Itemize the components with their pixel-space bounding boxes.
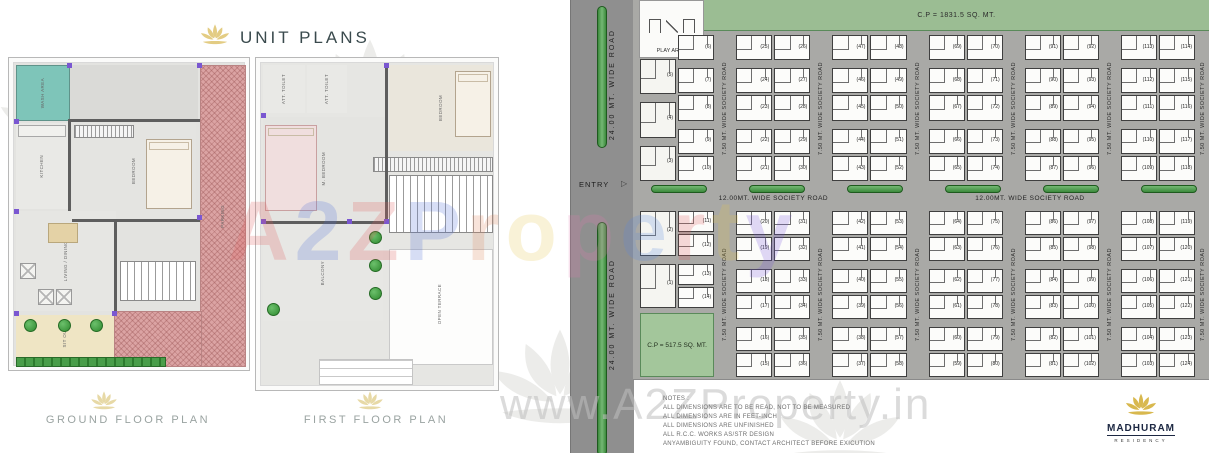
society-road: 7.50 MT. WIDE SOCIETY ROAD	[811, 34, 831, 182]
plot-cell: (4)	[640, 102, 676, 137]
plot-number: (118)	[1181, 166, 1192, 171]
watermark-letter: o	[505, 184, 562, 278]
plot-cell: (71)	[967, 68, 1003, 93]
society-road-label: 7.50 MT. WIDE SOCIETY ROAD	[915, 248, 921, 341]
society-road-label: 7.50 MT. WIDE SOCIETY ROAD	[1200, 62, 1206, 155]
main-road-label-top-text: 24.00 MT. WIDE ROAD	[609, 29, 616, 140]
plot-cell: (106)	[1121, 269, 1157, 293]
plot-cell: (20)	[736, 211, 772, 235]
plot-cell: (88)	[1025, 129, 1061, 154]
plot-number: (6)	[705, 45, 711, 50]
dining-table	[48, 223, 78, 243]
plot-number: (95)	[1087, 138, 1096, 143]
plot-number: (15)	[760, 362, 769, 367]
plot-cell: (32)	[774, 237, 810, 261]
plot-cell: (70)	[967, 35, 1003, 60]
room-label-parking: PARKING	[220, 205, 225, 228]
society-road: 7.50 MT. WIDE SOCIETY ROAD	[1100, 210, 1120, 378]
room-label-bedroom-first: BEDROOM	[438, 95, 443, 121]
tree	[24, 319, 37, 332]
plot-number: (11)	[703, 219, 712, 224]
plot-number: (71)	[991, 78, 1000, 83]
plot-block: (42)(41)(40)(39)(38)(37)(53)(54)(55)(56)…	[831, 210, 907, 378]
plot-number: (16)	[760, 336, 769, 341]
plot-cell: (66)	[929, 129, 965, 154]
plot-number: (116)	[1181, 105, 1192, 110]
plot-number: (69)	[953, 45, 962, 50]
plot-cell: (10)	[678, 156, 714, 181]
plot-cell: (47)	[832, 35, 868, 60]
plot-number: (82)	[1049, 336, 1058, 341]
plot-number: (123)	[1180, 336, 1192, 341]
plot-number: (62)	[953, 278, 962, 283]
plot-cell: (63)	[929, 237, 965, 261]
room-balcony: BALCONY	[263, 225, 383, 321]
plot-number: (2)	[667, 228, 673, 233]
plot-number: (84)	[1049, 278, 1058, 283]
plot-number: (47)	[857, 45, 866, 50]
note-line: ALL DIMENSIONS ARE UNFINISHED	[663, 422, 875, 431]
plot-cell: (76)	[967, 237, 1003, 261]
plot-cell: (26)	[774, 35, 810, 60]
plot-cell: (28)	[774, 95, 810, 120]
plot-cell: (93)	[1063, 68, 1099, 93]
plot-number: (18)	[760, 278, 769, 283]
plot-cell: (35)	[774, 327, 810, 351]
plot-cell: (87)	[1025, 156, 1061, 181]
plot-cell: (75)	[967, 211, 1003, 235]
tree	[369, 287, 382, 300]
plot-cell: (49)	[870, 68, 906, 93]
plot-column: (6)(7)(8)(9)(10)	[678, 34, 714, 182]
plot-cell: (115)	[1159, 68, 1195, 93]
road-median	[749, 185, 805, 193]
plot-cell: (5)	[640, 59, 676, 94]
room-wash-area: WASH AREA	[16, 65, 70, 121]
wall-accent	[261, 113, 266, 118]
plot-number: (88)	[1049, 138, 1058, 143]
mid-society-road-12m: 12.00MT. WIDE SOCIETY ROAD 12.00MT. WIDE…	[639, 182, 1209, 210]
plot-column: (42)(41)(40)(39)(38)(37)	[832, 210, 868, 378]
society-road: 7.50 MT. WIDE SOCIETY ROAD	[715, 210, 735, 378]
society-road-label: 7.50 MT. WIDE SOCIETY ROAD	[1011, 248, 1017, 341]
plot-cell: (59)	[929, 353, 965, 377]
plot-cell: (45)	[832, 95, 868, 120]
plot-cell: (81)	[1025, 353, 1061, 377]
plot-number: (78)	[991, 304, 1000, 309]
society-road-label: 7.50 MT. WIDE SOCIETY ROAD	[1107, 248, 1113, 341]
entry-label: ENTRY	[579, 180, 609, 189]
society-road: 7.50 MT. WIDE SOCIETY ROAD	[1004, 210, 1024, 378]
plot-number: (3)	[667, 159, 673, 164]
plot-cell: (46)	[832, 68, 868, 93]
plot-cell: (118)	[1159, 156, 1195, 181]
plot-cell: (99)	[1063, 269, 1099, 293]
wall	[114, 221, 117, 313]
plot-number: (77)	[991, 278, 1000, 283]
plot-cell: (103)	[1121, 353, 1157, 377]
plot-number: (107)	[1142, 246, 1154, 251]
plot-number: (28)	[798, 105, 807, 110]
staircase	[389, 175, 493, 233]
society-road: 7.50 MT. WIDE SOCIETY ROAD	[1100, 34, 1120, 182]
plot-cell: (114)	[1159, 35, 1195, 60]
plot-number: (31)	[798, 220, 807, 225]
plot-column: (2)(1)	[640, 210, 676, 309]
plot-number: (21)	[760, 166, 769, 171]
ground-floor-plan-drawing: WASH AREA PARKING KITCHEN BEDROOM LIVING…	[13, 62, 245, 366]
plot-number: (67)	[953, 105, 962, 110]
plot-number: (32)	[798, 246, 807, 251]
plot-cell: (111)	[1121, 95, 1157, 120]
room-label-bedroom: BEDROOM	[131, 158, 136, 184]
plot-number: (58)	[895, 362, 904, 367]
plot-column: (26)(27)(28)(29)(30)	[774, 34, 810, 182]
room-label-living: LIVING / DINING	[63, 241, 68, 281]
plot-cell: (51)	[870, 129, 906, 154]
plot-number: (41)	[857, 246, 866, 251]
plot-cell: (123)	[1159, 327, 1195, 351]
wall	[385, 65, 388, 221]
plot-cell: (7)	[678, 68, 714, 93]
plot-cell: (116)	[1159, 95, 1195, 120]
plot-cell: (50)	[870, 95, 906, 120]
society-road: 7.50 MT. WIDE SOCIETY ROAD	[811, 210, 831, 378]
wall-accent	[197, 63, 202, 68]
tree	[90, 319, 103, 332]
note-line: ALL DIMENSIONS ARE TO BE READ, NOT TO BE…	[663, 404, 875, 413]
plot-number: (122)	[1180, 304, 1192, 309]
plot-number: (45)	[857, 105, 866, 110]
plot-column: (92)(93)(94)(95)(96)	[1063, 34, 1099, 182]
plot-cell: (79)	[967, 327, 1003, 351]
plot-cell: (55)	[870, 269, 906, 293]
plot-cell: (74)	[967, 156, 1003, 181]
plot-number: (92)	[1087, 45, 1096, 50]
plot-cell: (100)	[1063, 295, 1099, 319]
plot-cell: (68)	[929, 68, 965, 93]
plot-cell: (12)	[678, 234, 714, 255]
plot-cell: (25)	[736, 35, 772, 60]
bed	[146, 139, 192, 209]
plot-cell: (43)	[832, 156, 868, 181]
plot-cell: (52)	[870, 156, 906, 181]
plot-number: (91)	[1049, 45, 1058, 50]
plot-column: (11)(12)(13)(14)	[678, 210, 714, 309]
plot-number: (121)	[1180, 278, 1192, 283]
plot-number: (101)	[1084, 336, 1096, 341]
plot-column: (69)(68)(67)(66)(65)	[929, 34, 965, 182]
room-att-toilet-1: ATT. TOILET	[263, 65, 305, 113]
plot-number: (119)	[1181, 220, 1192, 225]
plot-cell: (82)	[1025, 327, 1061, 351]
plot-cell: (124)	[1159, 353, 1195, 377]
wall	[70, 119, 200, 122]
sofa-seat	[38, 289, 54, 305]
society-road-label: 7.50 MT. WIDE SOCIETY ROAD	[1107, 62, 1113, 155]
plot-number: (1)	[667, 281, 673, 286]
note-line: ALL R.C.C. WORKS AS/STR DESIGN	[663, 431, 875, 440]
plot-cell: (72)	[967, 95, 1003, 120]
plot-number: (76)	[991, 246, 1000, 251]
plot-column: (75)(76)(77)(78)(79)(80)	[967, 210, 1003, 378]
plot-number: (73)	[991, 138, 1000, 143]
plot-number: (19)	[760, 246, 769, 251]
wall-accent	[384, 219, 389, 224]
plot-number: (105)	[1142, 304, 1154, 309]
plot-number: (63)	[953, 246, 962, 251]
plot-number: (74)	[991, 166, 1000, 171]
page-title: UNIT PLANS	[240, 28, 370, 48]
main-road-label-bottom: 24.00 MT. WIDE ROAD	[609, 240, 616, 390]
plot-cell: (113)	[1121, 35, 1157, 60]
first-floor-plan-label: FIRST FLOOR PLAN	[255, 414, 497, 426]
wall-accent	[14, 119, 19, 124]
main-road-label-bottom-text: 24.00 MT. WIDE ROAD	[609, 259, 616, 370]
plot-number: (8)	[705, 105, 711, 110]
plot-number: (5)	[667, 73, 673, 78]
plot-number: (38)	[857, 336, 866, 341]
tree	[369, 259, 382, 272]
plot-number: (106)	[1142, 278, 1154, 283]
plot-cell: (56)	[870, 295, 906, 319]
plot-number: (54)	[895, 246, 904, 251]
plot-column: (91)(90)(89)(88)(87)	[1025, 34, 1061, 182]
plot-number: (97)	[1087, 220, 1096, 225]
society-road: 7.50 MT. WIDE SOCIETY ROAD	[1196, 210, 1209, 378]
plot-number: (90)	[1049, 78, 1058, 83]
plot-number: (37)	[857, 362, 866, 367]
wall-accent	[197, 215, 202, 220]
plot-cell: (42)	[832, 211, 868, 235]
note-line: ALL DIMENSIONS ARE IN FEET-INCH	[663, 413, 875, 422]
room-label-wash: WASH AREA	[40, 78, 45, 108]
plot-number: (109)	[1142, 166, 1154, 171]
plot-cell: (108)	[1121, 211, 1157, 235]
plot-cell: (48)	[870, 35, 906, 60]
plot-number: (20)	[760, 220, 769, 225]
sofa-seat	[20, 263, 36, 279]
main-road-label-top: 24.00 MT. WIDE ROAD	[609, 20, 616, 150]
plot-number: (30)	[798, 166, 807, 171]
plot-number: (68)	[953, 78, 962, 83]
plot-cell: (122)	[1159, 295, 1195, 319]
plot-number: (113)	[1143, 45, 1154, 50]
plot-cell: (95)	[1063, 129, 1099, 154]
plot-number: (48)	[895, 45, 904, 50]
common-plot-bottom: C.P = 517.5 SQ. MT.	[640, 313, 714, 377]
wall-accent	[347, 219, 352, 224]
road-median	[597, 6, 607, 148]
plot-number: (51)	[895, 138, 904, 143]
plot-cell: (53)	[870, 211, 906, 235]
plot-block: (69)(68)(67)(66)(65)(70)(71)(72)(73)(74)	[928, 34, 1004, 182]
plot-cell: (62)	[929, 269, 965, 293]
plot-number: (12)	[702, 243, 711, 248]
road-median	[1043, 185, 1099, 193]
tree	[369, 231, 382, 244]
wall-accent	[14, 209, 19, 214]
plot-number: (87)	[1049, 166, 1058, 171]
plot-cell: (112)	[1121, 68, 1157, 93]
plot-number: (102)	[1084, 362, 1096, 367]
ground-plan-lotus-icon	[86, 390, 122, 412]
society-road-label: 7.50 MT. WIDE SOCIETY ROAD	[1011, 62, 1017, 155]
plot-column: (53)(54)(55)(56)(57)(58)	[870, 210, 906, 378]
parking-area: PARKING	[200, 65, 246, 367]
road-median	[847, 185, 903, 193]
plot-number: (24)	[760, 78, 769, 83]
main-road-24m: 24.00 MT. WIDE ROAD 24.00 MT. WIDE ROAD …	[570, 0, 634, 453]
plot-number: (36)	[798, 362, 807, 367]
mid-road-label-left: 12.00MT. WIDE SOCIETY ROAD	[719, 195, 828, 202]
plot-cell: (8)	[678, 95, 714, 120]
plot-number: (72)	[991, 105, 1000, 110]
plot-cell: (83)	[1025, 295, 1061, 319]
plot-cell: (97)	[1063, 211, 1099, 235]
plot-column: (70)(71)(72)(73)(74)	[967, 34, 1003, 182]
plot-block: (108)(107)(106)(105)(104)(103)(119)(120)…	[1120, 210, 1196, 378]
brochure-page: UNIT PLANS WASH AREA PARKING KITCHEN BED…	[0, 0, 1209, 453]
first-plan-lotus-icon	[352, 390, 388, 412]
plot-cell: (1)	[640, 264, 676, 309]
plot-cell: (57)	[870, 327, 906, 351]
seesaw-icon	[683, 19, 695, 33]
plot-cell: (29)	[774, 129, 810, 154]
plot-block: (5)(4)(3)(6)(7)(8)(9)(10)	[639, 34, 715, 182]
plot-cell: (85)	[1025, 237, 1061, 261]
plot-cell: (119)	[1159, 211, 1195, 235]
society-road: 7.50 MT. WIDE SOCIETY ROAD	[715, 34, 735, 182]
wall-accent	[14, 311, 19, 316]
plot-cell: (86)	[1025, 211, 1061, 235]
notes-lines: ALL DIMENSIONS ARE TO BE READ, NOT TO BE…	[663, 404, 875, 449]
plot-cell: (98)	[1063, 237, 1099, 261]
slide-icon	[666, 20, 678, 33]
society-road-label: 7.50 MT. WIDE SOCIETY ROAD	[1200, 248, 1206, 341]
plot-cell: (65)	[929, 156, 965, 181]
plot-cell: (104)	[1121, 327, 1157, 351]
plot-cell: (21)	[736, 156, 772, 181]
road-median	[651, 185, 707, 193]
wall	[263, 221, 388, 224]
plot-block: (91)(90)(89)(88)(87)(92)(93)(94)(95)(96)	[1024, 34, 1100, 182]
plot-number: (94)	[1087, 105, 1096, 110]
plot-number: (4)	[667, 116, 673, 121]
common-plot-top: C.P = 1831.5 SQ. MT.	[704, 0, 1209, 31]
plot-cell: (38)	[832, 327, 868, 351]
plot-cell: (107)	[1121, 237, 1157, 261]
plot-cell: (67)	[929, 95, 965, 120]
plot-number: (59)	[953, 362, 962, 367]
tree	[267, 303, 280, 316]
kitchen-counter	[18, 125, 66, 137]
plot-cell: (102)	[1063, 353, 1099, 377]
plot-number: (115)	[1181, 78, 1192, 83]
plot-number: (22)	[760, 138, 769, 143]
plot-block: (2)(1)(11)(12)(13)(14)C.P = 517.5 SQ. MT…	[639, 210, 715, 378]
wardrobe	[373, 157, 493, 172]
plot-number: (104)	[1142, 336, 1154, 341]
plot-number: (17)	[760, 304, 769, 309]
plot-block: (20)(19)(18)(17)(16)(15)(31)(32)(33)(34)…	[735, 210, 811, 378]
plot-number: (50)	[895, 105, 904, 110]
plot-cell: (89)	[1025, 95, 1061, 120]
plot-number: (120)	[1180, 246, 1192, 251]
plot-cell: (24)	[736, 68, 772, 93]
plot-column: (114)(115)(116)(117)(118)	[1159, 34, 1195, 182]
plot-number: (34)	[798, 304, 807, 309]
plot-column: (108)(107)(106)(105)(104)(103)	[1121, 210, 1157, 378]
mid-road-medians	[639, 185, 1209, 193]
plot-number: (56)	[895, 304, 904, 309]
plot-cell: (6)	[678, 35, 714, 60]
plot-number: (40)	[857, 278, 866, 283]
plot-cell: (60)	[929, 327, 965, 351]
plot-cell: (9)	[678, 129, 714, 154]
wall	[72, 219, 200, 222]
plot-number: (43)	[857, 166, 866, 171]
society-road: 7.50 MT. WIDE SOCIETY ROAD	[1196, 34, 1209, 182]
society-road-label: 7.50 MT. WIDE SOCIETY ROAD	[818, 62, 824, 155]
plot-number: (98)	[1087, 246, 1096, 251]
plot-number: (108)	[1142, 220, 1154, 225]
plot-block: (47)(46)(45)(44)(43)(48)(49)(50)(51)(52)	[831, 34, 907, 182]
notes-heading: NOTES :	[663, 395, 875, 404]
plot-cell: (41)	[832, 237, 868, 261]
plot-number: (96)	[1087, 166, 1096, 171]
plot-number: (33)	[798, 278, 807, 283]
plot-number: (99)	[1087, 278, 1096, 283]
plot-column: (64)(63)(62)(61)(60)(59)	[929, 210, 965, 378]
plot-number: (26)	[798, 45, 807, 50]
plot-cell: (34)	[774, 295, 810, 319]
plot-cell: (90)	[1025, 68, 1061, 93]
plot-cell: (31)	[774, 211, 810, 235]
plot-cell: (3)	[640, 146, 676, 181]
plot-number: (44)	[857, 138, 866, 143]
plot-cell: (22)	[736, 129, 772, 154]
plot-number: (70)	[991, 45, 1000, 50]
plot-block: (64)(63)(62)(61)(60)(59)(75)(76)(77)(78)…	[928, 210, 1004, 378]
plot-column: (86)(85)(84)(83)(82)(81)	[1025, 210, 1061, 378]
room-label-mbedroom: M. BEDROOM	[321, 152, 326, 186]
plot-cell: (30)	[774, 156, 810, 181]
plot-cell: (96)	[1063, 156, 1099, 181]
plot-cell: (110)	[1121, 129, 1157, 154]
plot-column: (97)(98)(99)(100)(101)(102)	[1063, 210, 1099, 378]
wall	[68, 119, 71, 211]
plot-cell: (15)	[736, 353, 772, 377]
plot-number: (66)	[953, 138, 962, 143]
sofa-seat	[56, 289, 72, 305]
ground-floor-plan-label: GROUND FLOOR PLAN	[8, 414, 248, 426]
plot-cell: (101)	[1063, 327, 1099, 351]
note-line: ANYAMBIGUITY FOUND, CONTACT ARCHITECT BE…	[663, 440, 875, 449]
open-terrace: OPEN TERRACE	[389, 249, 493, 365]
plot-column: (5)(4)(3)	[640, 58, 676, 182]
plot-number: (42)	[857, 220, 866, 225]
plot-number: (57)	[895, 336, 904, 341]
road-median	[945, 185, 1001, 193]
plot-cell: (58)	[870, 353, 906, 377]
plot-number: (49)	[895, 78, 904, 83]
plot-cell: (92)	[1063, 35, 1099, 60]
wall-accent	[112, 311, 117, 316]
plot-cell: (19)	[736, 237, 772, 261]
plot-cell: (11)	[678, 211, 714, 232]
plot-number: (25)	[760, 45, 769, 50]
